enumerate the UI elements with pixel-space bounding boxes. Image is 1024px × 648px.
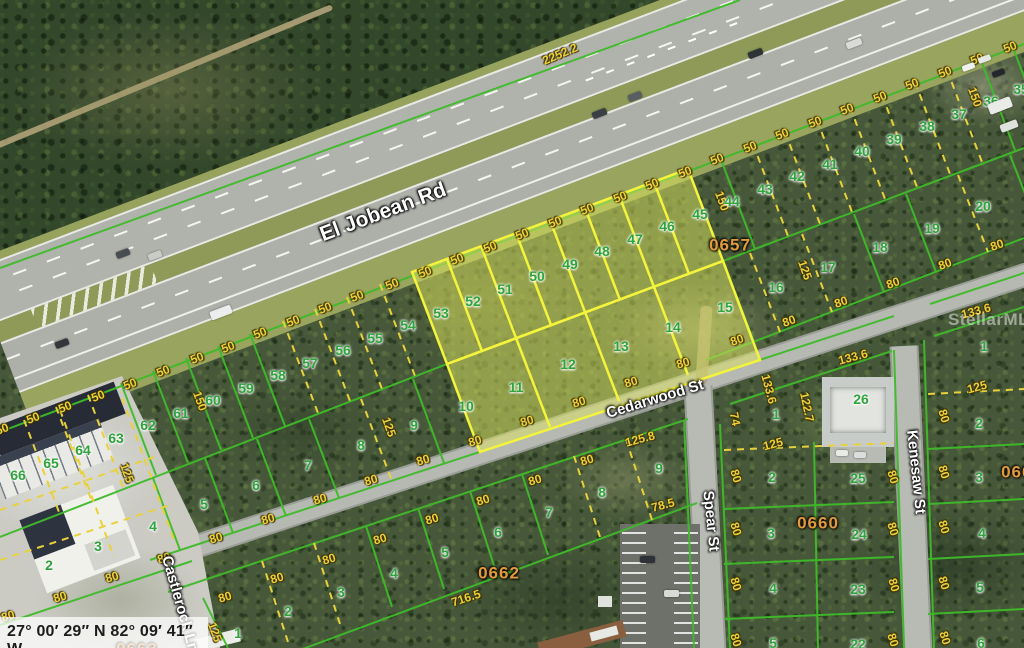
lot-label-58: 58 (270, 368, 286, 382)
lot-label-38: 38 (919, 119, 935, 133)
lot-label-1: 1 (772, 407, 780, 421)
lot-label-1: 1 (980, 339, 988, 353)
block-label-0661: 0661 (1001, 464, 1024, 481)
lot-label-47: 47 (627, 232, 643, 246)
lot-label-14: 14 (665, 320, 681, 334)
lot-label-5: 5 (200, 497, 208, 511)
lot-label-4: 4 (978, 526, 986, 540)
lot-label-2: 2 (45, 558, 53, 572)
lot-label-63: 63 (108, 431, 124, 445)
lot-label-44: 44 (724, 194, 740, 208)
lot-label-66: 66 (10, 468, 26, 482)
lot-label-43: 43 (757, 182, 773, 196)
coordinates-bar: 27° 00′ 29″ N 82° 09′ 41″ W (0, 617, 208, 648)
vehicle (664, 590, 679, 597)
lot-label-24: 24 (851, 527, 867, 541)
lot-label-3: 3 (975, 470, 983, 484)
lot-label-64: 64 (75, 443, 91, 457)
satellite-plat-map: 2252.25050505050505050505050505050505050… (0, 0, 1024, 648)
lot-label-17: 17 (820, 260, 836, 274)
lot-label-35: 35 (1013, 82, 1024, 96)
lot-label-5: 5 (769, 636, 777, 648)
lot-label-60: 60 (205, 393, 221, 407)
lot-label-4: 4 (769, 581, 777, 595)
block-label-0660: 0660 (797, 515, 839, 532)
lot-label-40: 40 (854, 144, 870, 158)
lot-label-41: 41 (822, 157, 838, 171)
lot-label-51: 51 (497, 282, 513, 296)
lot-label-46: 46 (659, 219, 675, 233)
dimension-label-74: 74 (728, 411, 743, 427)
lot-label-4: 4 (149, 519, 157, 533)
lot-label-1: 1 (234, 626, 242, 640)
lot-label-13: 13 (613, 339, 629, 353)
block-label-0662: 0662 (478, 565, 520, 582)
lot-label-5: 5 (976, 580, 984, 594)
lot-label-25: 25 (850, 471, 866, 485)
lot-label-37: 37 (951, 107, 967, 121)
lot-label-11: 11 (509, 380, 524, 394)
lot-label-61: 61 (173, 406, 189, 420)
lot-label-20: 20 (975, 199, 991, 213)
lot-label-56: 56 (335, 343, 351, 357)
lot-label-57: 57 (302, 356, 318, 370)
vehicle (836, 450, 848, 456)
lot-label-5: 5 (441, 545, 449, 559)
lot-label-26: 26 (853, 392, 869, 406)
lot-label-50: 50 (529, 269, 545, 283)
lot-label-45: 45 (692, 207, 708, 221)
stellar-mls-watermark: StellarMLS (948, 310, 1024, 330)
lot-label-49: 49 (562, 257, 578, 271)
lot-label-16: 16 (768, 280, 784, 294)
lot-label-9: 9 (410, 418, 418, 432)
lot-label-23: 23 (850, 582, 866, 596)
lot-label-3: 3 (94, 539, 102, 553)
lot-label-8: 8 (598, 485, 606, 499)
lot-label-19: 19 (924, 221, 940, 235)
lot-label-8: 8 (357, 438, 365, 452)
lot-label-48: 48 (594, 244, 610, 258)
lot-label-9: 9 (655, 461, 663, 475)
lot-label-12: 12 (560, 357, 576, 371)
lot-label-7: 7 (545, 505, 553, 519)
lot-label-62: 62 (140, 418, 156, 432)
lot-label-2: 2 (975, 416, 983, 430)
coordinates-readout: 27° 00′ 29″ N 82° 09′ 41″ W (7, 623, 208, 648)
lot-label-2: 2 (284, 604, 292, 618)
lot-label-3: 3 (767, 526, 775, 540)
lot-label-10: 10 (458, 399, 474, 413)
lot-label-53: 53 (433, 306, 449, 320)
lot-label-42: 42 (789, 169, 805, 183)
lot-label-3: 3 (337, 585, 345, 599)
lot-label-52: 52 (465, 294, 481, 308)
lot-label-55: 55 (367, 331, 383, 345)
vehicle (854, 452, 866, 458)
plat-lines-layer (0, 0, 1024, 648)
lot-label-65: 65 (43, 456, 59, 470)
block-label-0657: 0657 (709, 237, 751, 254)
lot-label-6: 6 (494, 525, 502, 539)
lot-label-4: 4 (390, 566, 398, 580)
lot-label-7: 7 (304, 458, 312, 472)
lot-label-39: 39 (886, 132, 902, 146)
vehicle (640, 556, 655, 563)
lot-label-6: 6 (977, 636, 985, 648)
lot-label-54: 54 (400, 318, 416, 332)
lot-label-15: 15 (717, 300, 733, 314)
lot-label-18: 18 (872, 240, 888, 254)
lot-label-2: 2 (768, 470, 776, 484)
lot-label-22: 22 (850, 637, 866, 648)
lot-label-59: 59 (238, 381, 254, 395)
lot-label-6: 6 (252, 478, 260, 492)
